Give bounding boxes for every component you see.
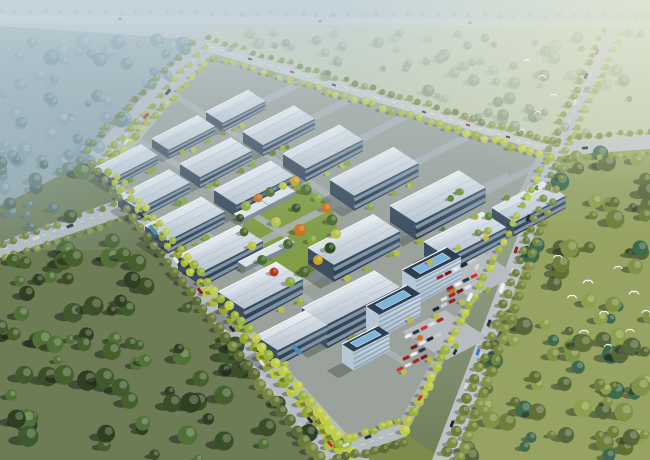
scene-svg [0,0,650,460]
haze-layer [0,0,650,250]
aerial-industrial-park-rendering [0,0,650,460]
